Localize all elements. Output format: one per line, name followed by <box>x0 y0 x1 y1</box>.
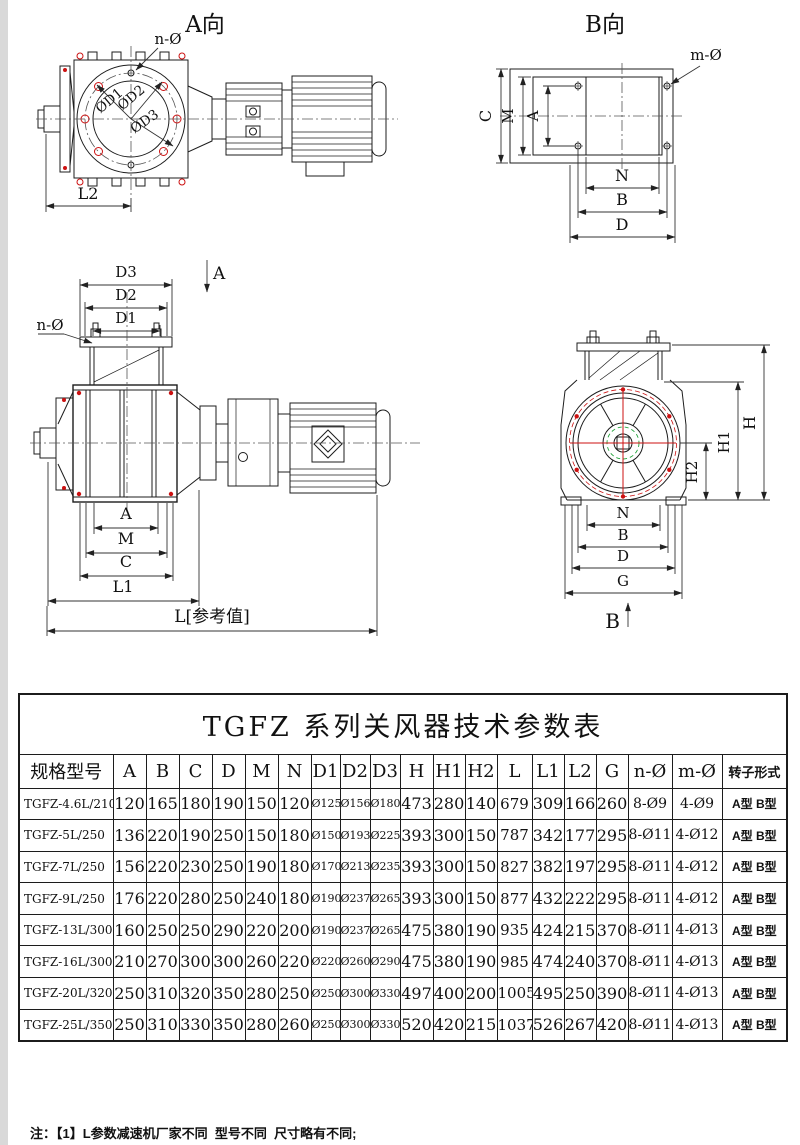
cell-d2: Ø260 <box>340 946 370 978</box>
cell-m-holes: 4-Ø12 <box>672 851 722 883</box>
column-header: D1 <box>311 754 340 788</box>
cell-n: 200 <box>278 914 311 946</box>
cell-g: 370 <box>596 914 628 946</box>
cell-m: 190 <box>245 851 278 883</box>
cell-c: 330 <box>179 1009 212 1041</box>
cell-d: 250 <box>212 820 245 852</box>
cell-model: TGFZ-4.6L/210 <box>19 788 113 820</box>
cell-l1: 474 <box>532 946 564 978</box>
cell-l2: 267 <box>564 1009 596 1041</box>
cell-m-holes: 4-Ø13 <box>672 946 722 978</box>
cell-m: 220 <box>245 914 278 946</box>
cell-rotor-type: A型 B型 <box>722 914 787 946</box>
spec-table-section: TGFZ 系列关风器技术参数表 规格型号ABCDMND1D2D3HH1H2LL1… <box>18 693 786 1040</box>
cell-l1: 432 <box>532 883 564 915</box>
cell-a: 210 <box>113 946 146 978</box>
section-a-marker: A <box>207 260 226 292</box>
cell-d1: Ø150 <box>311 820 340 852</box>
dim-h2-label: H2 <box>683 461 701 484</box>
cell-l2: 222 <box>564 883 596 915</box>
dim-m-label: M <box>499 108 517 123</box>
cell-l1: 342 <box>532 820 564 852</box>
view-a-label: A向 <box>184 12 225 38</box>
m-hole-label: m-Ø <box>690 46 722 64</box>
cell-d3: Ø330 <box>370 1009 400 1041</box>
table-row: TGFZ-13L/300 160 250 250 290 220 200 Ø19… <box>19 914 787 946</box>
front-body <box>73 385 177 502</box>
cell-n-holes: 8-Ø11 <box>628 1009 672 1041</box>
cell-b: 220 <box>146 851 179 883</box>
cell-h1: 400 <box>433 978 465 1010</box>
cell-model: TGFZ-20L/320 <box>19 978 113 1010</box>
cell-rotor-type: A型 B型 <box>722 788 787 820</box>
front-top-dims: D3 D2 D1 <box>80 263 172 336</box>
table-row: TGFZ-9L/250 176 220 280 250 240 180 Ø190… <box>19 883 787 915</box>
cell-m-holes: 4-Ø13 <box>672 978 722 1010</box>
front-bottom-dims: A M C L1 L[参考值] <box>47 462 377 636</box>
cell-l: 935 <box>497 914 532 946</box>
view-a-gearmotor <box>188 76 386 176</box>
note-line-1: 注：【1】L参数减速机厂家不同 型号不同 尺寸略有不同; <box>30 1122 574 1145</box>
cell-rotor-type: A型 B型 <box>722 1009 787 1041</box>
cell-d2: Ø237 <box>340 914 370 946</box>
column-header: C <box>179 754 212 788</box>
column-header: D2 <box>340 754 370 788</box>
cell-l2: 177 <box>564 820 596 852</box>
cell-g: 260 <box>596 788 628 820</box>
cell-h: 497 <box>400 978 433 1010</box>
cell-d2: Ø213 <box>340 851 370 883</box>
side-bottom-dims: N B D G <box>565 504 682 599</box>
cell-b: 270 <box>146 946 179 978</box>
cell-d2: Ø193 <box>340 820 370 852</box>
cell-n: 260 <box>278 1009 311 1041</box>
view-b-drawing: B向 m-Ø C <box>476 12 722 243</box>
cell-c: 320 <box>179 978 212 1010</box>
dim-d-label: D <box>617 547 629 565</box>
cell-b: 310 <box>146 1009 179 1041</box>
cell-d1: Ø190 <box>311 883 340 915</box>
cell-d3: Ø330 <box>370 978 400 1010</box>
front-gearmotor <box>177 392 390 495</box>
cell-model: TGFZ-7L/250 <box>19 851 113 883</box>
cell-l1: 526 <box>532 1009 564 1041</box>
cell-b: 220 <box>146 883 179 915</box>
technical-drawings: A向 <box>0 0 800 660</box>
cell-b: 310 <box>146 978 179 1010</box>
cell-n-holes: 8-Ø11 <box>628 883 672 915</box>
column-header: G <box>596 754 628 788</box>
cell-c: 300 <box>179 946 212 978</box>
dim-h-label: H <box>740 416 759 430</box>
section-b-label: B <box>605 609 620 633</box>
cell-g: 370 <box>596 946 628 978</box>
front-view-drawing: A D3 D2 D1 n-Ø <box>30 260 420 636</box>
dim-d-label: D <box>616 215 629 234</box>
cell-m: 240 <box>245 883 278 915</box>
spec-sheet-page: A向 <box>0 0 800 1145</box>
cell-n: 250 <box>278 978 311 1010</box>
section-a-label: A <box>212 264 226 284</box>
cell-c: 190 <box>179 820 212 852</box>
cell-n: 180 <box>278 820 311 852</box>
cell-h2: 215 <box>465 1009 497 1041</box>
cell-l2: 215 <box>564 914 596 946</box>
cell-d1: Ø250 <box>311 978 340 1010</box>
cell-n-holes: 8-Ø11 <box>628 914 672 946</box>
cell-n-holes: 8-Ø11 <box>628 978 672 1010</box>
cell-b: 220 <box>146 820 179 852</box>
cell-n: 180 <box>278 851 311 883</box>
cell-h1: 300 <box>433 820 465 852</box>
cell-model: TGFZ-5L/250 <box>19 820 113 852</box>
cell-h2: 150 <box>465 820 497 852</box>
cell-l2: 250 <box>564 978 596 1010</box>
column-header: H2 <box>465 754 497 788</box>
cell-n-holes: 8-Ø11 <box>628 851 672 883</box>
cell-a: 120 <box>113 788 146 820</box>
cell-h1: 380 <box>433 914 465 946</box>
front-inlet-flange <box>80 323 172 385</box>
cell-g: 390 <box>596 978 628 1010</box>
cell-model: TGFZ-9L/250 <box>19 883 113 915</box>
cell-a: 136 <box>113 820 146 852</box>
column-header: L1 <box>532 754 564 788</box>
cell-a: 176 <box>113 883 146 915</box>
cell-a: 160 <box>113 914 146 946</box>
dim-d2-label: D2 <box>115 286 137 304</box>
column-header: B <box>146 754 179 788</box>
column-header: D3 <box>370 754 400 788</box>
cell-h1: 300 <box>433 883 465 915</box>
table-body: TGFZ-4.6L/210 120 165 180 190 150 120 Ø1… <box>19 788 787 1041</box>
motor-logo-icon <box>314 430 342 458</box>
table-header-row: 规格型号ABCDMND1D2D3HH1H2LL1L2Gn-Øm-Ø转子形式 <box>19 754 787 788</box>
table-row: TGFZ-7L/250 156 220 230 250 190 180 Ø170… <box>19 851 787 883</box>
column-header: N <box>278 754 311 788</box>
cell-model: TGFZ-13L/300 <box>19 914 113 946</box>
cell-b: 165 <box>146 788 179 820</box>
table-row: TGFZ-16L/300 210 270 300 300 260 220 Ø22… <box>19 946 787 978</box>
cell-a: 156 <box>113 851 146 883</box>
cell-d: 350 <box>212 978 245 1010</box>
cell-m: 260 <box>245 946 278 978</box>
cell-g: 420 <box>596 1009 628 1041</box>
side-rotor <box>566 386 680 500</box>
side-inlet <box>577 331 670 380</box>
cell-l1: 495 <box>532 978 564 1010</box>
cell-l: 827 <box>497 851 532 883</box>
n-hole-label: n-Ø <box>154 30 181 48</box>
dim-l-label: L[参考值] <box>174 607 250 627</box>
cell-rotor-type: A型 B型 <box>722 883 787 915</box>
dim-d1-label: D1 <box>115 309 137 327</box>
column-header: M <box>245 754 278 788</box>
column-header: A <box>113 754 146 788</box>
cell-m: 150 <box>245 788 278 820</box>
cell-n-holes: 8-Ø11 <box>628 820 672 852</box>
cell-d3: Ø225 <box>370 820 400 852</box>
dim-n-label: N <box>616 504 629 522</box>
column-header: 转子形式 <box>722 754 787 788</box>
cell-l2: 240 <box>564 946 596 978</box>
cell-d1: Ø125 <box>311 788 340 820</box>
cell-n: 220 <box>278 946 311 978</box>
cell-h2: 140 <box>465 788 497 820</box>
dim-a-label: A <box>524 110 542 122</box>
view-a-n-callout: n-Ø <box>136 30 182 70</box>
view-b-m-callout: m-Ø <box>671 46 722 84</box>
cell-d2: Ø156 <box>340 788 370 820</box>
view-a-l2-dim: L2 <box>46 134 131 212</box>
cell-l1: 309 <box>532 788 564 820</box>
column-header: L2 <box>564 754 596 788</box>
cell-model: TGFZ-16L/300 <box>19 946 113 978</box>
cell-l1: 424 <box>532 914 564 946</box>
dim-m-label: M <box>118 529 134 548</box>
table-title-row: TGFZ 系列关风器技术参数表 <box>19 694 787 754</box>
table-row: TGFZ-25L/350 250 310 330 350 280 260 Ø25… <box>19 1009 787 1041</box>
column-header: 规格型号 <box>19 754 113 788</box>
cell-a: 250 <box>113 1009 146 1041</box>
cell-h2: 150 <box>465 851 497 883</box>
cell-l: 787 <box>497 820 532 852</box>
cell-d1: Ø250 <box>311 1009 340 1041</box>
d2-label: ØD2 <box>115 82 149 114</box>
table-row: TGFZ-20L/320 250 310 320 350 280 250 Ø25… <box>19 978 787 1010</box>
cell-h1: 300 <box>433 851 465 883</box>
cell-m-holes: 4-Ø13 <box>672 1009 722 1041</box>
table-row: TGFZ-4.6L/210 120 165 180 190 150 120 Ø1… <box>19 788 787 820</box>
dim-a-label: A <box>119 504 132 523</box>
cell-h: 393 <box>400 883 433 915</box>
cell-c: 280 <box>179 883 212 915</box>
cell-d: 290 <box>212 914 245 946</box>
cell-h: 393 <box>400 820 433 852</box>
cell-l2: 197 <box>564 851 596 883</box>
cell-n-holes: 8-Ø9 <box>628 788 672 820</box>
cell-h: 473 <box>400 788 433 820</box>
cell-rotor-type: A型 B型 <box>722 946 787 978</box>
column-header: H <box>400 754 433 788</box>
cell-rotor-type: A型 B型 <box>722 820 787 852</box>
cell-g: 295 <box>596 883 628 915</box>
cell-l: 1005 <box>497 978 532 1010</box>
column-header: m-Ø <box>672 754 722 788</box>
cell-h2: 150 <box>465 883 497 915</box>
cell-m-holes: 4-Ø13 <box>672 914 722 946</box>
table-title: TGFZ 系列关风器技术参数表 <box>19 694 787 754</box>
cell-d: 350 <box>212 1009 245 1041</box>
cell-h1: 380 <box>433 946 465 978</box>
cell-h2: 190 <box>465 946 497 978</box>
cell-d3: Ø180 <box>370 788 400 820</box>
cell-rotor-type: A型 B型 <box>722 851 787 883</box>
dim-d3-label: D3 <box>115 263 137 281</box>
cell-n: 180 <box>278 883 311 915</box>
dim-b-label: B <box>616 190 628 209</box>
cell-d1: Ø220 <box>311 946 340 978</box>
cell-n-holes: 8-Ø11 <box>628 946 672 978</box>
cell-d3: Ø265 <box>370 883 400 915</box>
section-b-marker: B <box>605 603 628 633</box>
view-b-bottom-dims: N B D <box>570 150 675 243</box>
cell-h: 520 <box>400 1009 433 1041</box>
table-row: TGFZ-5L/250 136 220 190 250 150 180 Ø150… <box>19 820 787 852</box>
cell-m: 150 <box>245 820 278 852</box>
side-right-dims: H H1 H2 <box>664 345 770 500</box>
dim-c-label: C <box>476 110 495 122</box>
l2-label: L2 <box>78 184 99 203</box>
cell-a: 250 <box>113 978 146 1010</box>
cell-c: 180 <box>179 788 212 820</box>
cell-rotor-type: A型 B型 <box>722 978 787 1010</box>
d3-label: ØD3 <box>128 106 162 137</box>
cell-d: 190 <box>212 788 245 820</box>
dim-b-label: B <box>617 526 628 544</box>
spec-table: TGFZ 系列关风器技术参数表 规格型号ABCDMND1D2D3HH1H2LL1… <box>18 693 788 1042</box>
dim-c-label: C <box>120 552 132 571</box>
cell-m-holes: 4-Ø9 <box>672 788 722 820</box>
column-header: H1 <box>433 754 465 788</box>
cell-l1: 382 <box>532 851 564 883</box>
cell-l: 985 <box>497 946 532 978</box>
cell-d: 250 <box>212 851 245 883</box>
cell-c: 230 <box>179 851 212 883</box>
front-shaft <box>34 392 73 496</box>
cell-m: 280 <box>245 978 278 1010</box>
view-a-drawing: A向 <box>36 12 398 212</box>
cell-d3: Ø265 <box>370 914 400 946</box>
cell-d2: Ø300 <box>340 978 370 1010</box>
cell-g: 295 <box>596 851 628 883</box>
cell-h1: 280 <box>433 788 465 820</box>
cell-l: 877 <box>497 883 532 915</box>
cell-d3: Ø235 <box>370 851 400 883</box>
cell-l2: 166 <box>564 788 596 820</box>
cell-d1: Ø170 <box>311 851 340 883</box>
front-n-hole-label: n-Ø <box>36 316 63 334</box>
notes: 注：【1】L参数减速机厂家不同 型号不同 尺寸略有不同; 【2】尺寸若有改动 以… <box>30 1076 574 1145</box>
cell-c: 250 <box>179 914 212 946</box>
cell-n: 120 <box>278 788 311 820</box>
cell-h2: 200 <box>465 978 497 1010</box>
cell-h: 393 <box>400 851 433 883</box>
column-header: D <box>212 754 245 788</box>
cell-l: 679 <box>497 788 532 820</box>
view-b-label: B向 <box>585 12 625 38</box>
cell-d: 300 <box>212 946 245 978</box>
cell-model: TGFZ-25L/350 <box>19 1009 113 1041</box>
cell-d1: Ø190 <box>311 914 340 946</box>
front-n-callout: n-Ø <box>36 316 92 343</box>
cell-d: 250 <box>212 883 245 915</box>
cell-d3: Ø290 <box>370 946 400 978</box>
cell-g: 295 <box>596 820 628 852</box>
cell-m-holes: 4-Ø12 <box>672 883 722 915</box>
column-header: L <box>497 754 532 788</box>
dim-n-label: N <box>615 166 629 185</box>
cell-d2: Ø237 <box>340 883 370 915</box>
dim-h1-label: H1 <box>715 431 733 454</box>
cell-h2: 190 <box>465 914 497 946</box>
cell-h: 475 <box>400 914 433 946</box>
dim-l1-label: L1 <box>113 577 134 596</box>
cell-m-holes: 4-Ø12 <box>672 820 722 852</box>
cell-h1: 420 <box>433 1009 465 1041</box>
note-prefix: 注： <box>30 1126 56 1141</box>
cell-h: 475 <box>400 946 433 978</box>
cell-d2: Ø300 <box>340 1009 370 1041</box>
side-view-drawing: H H1 H2 N B D G <box>561 331 770 633</box>
column-header: n-Ø <box>628 754 672 788</box>
cell-m: 280 <box>245 1009 278 1041</box>
cell-b: 250 <box>146 914 179 946</box>
dim-g-label: G <box>617 572 629 590</box>
note-1-text: 【1】L参数减速机厂家不同 型号不同 尺寸略有不同; <box>56 1126 356 1141</box>
cell-l: 1037 <box>497 1009 532 1041</box>
